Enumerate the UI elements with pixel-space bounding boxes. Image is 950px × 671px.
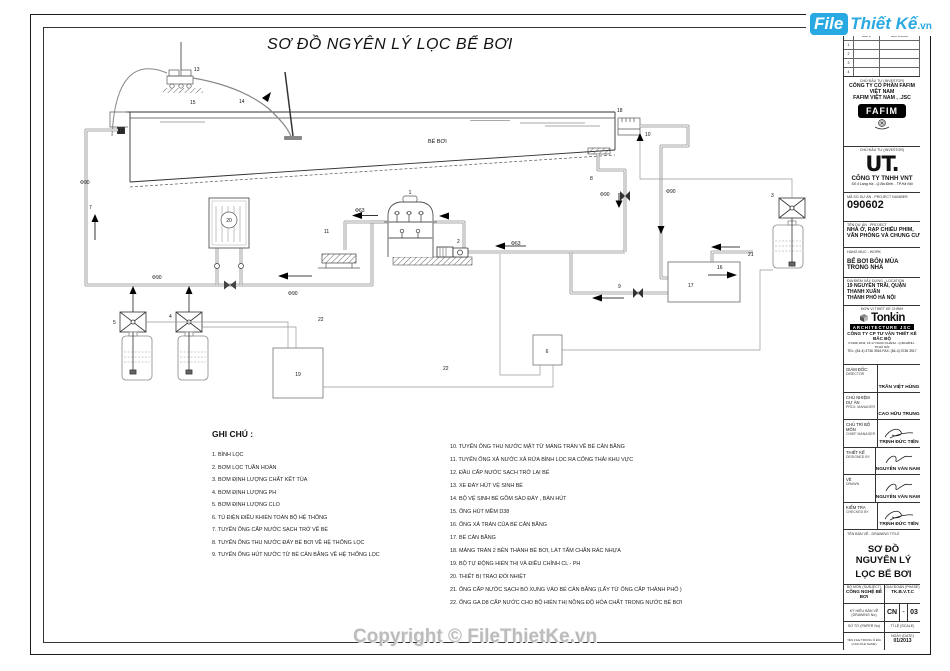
staff-row-checked-by: KIỂM TRA CHECKED BY TRỊNH ĐỨC TIẾN xyxy=(844,503,920,531)
legend-item: 22. ỐNG GA D8 CẤP NƯỚC CHO BỘ HIỂN THỊ N… xyxy=(450,597,730,610)
investor-1-section: CHỦ ĐẦU TƯ (INVESTOR) CÔNG TY CỔ PHẦN FA… xyxy=(844,76,920,147)
signature-icon xyxy=(881,454,915,467)
legend-item: 14. BỘ VỆ SINH BỂ GỒM SÀO ĐẨY , BÀN HÚT xyxy=(450,493,730,506)
staff-label-vn: CHỦ NHIỆM DỰ ÁN xyxy=(846,395,876,405)
rev-row-num: 2 xyxy=(844,50,854,59)
location-line1: 19 NGUYỄN TRÃI, QUẬN THANH XUÂN xyxy=(847,283,920,295)
design-firm-name: CÔNG TY CP TƯ VẤN THIẾT KẾ BẮC BỘ xyxy=(844,331,920,341)
revision-table: DATE NỘI DUNG 1 2 3 4 xyxy=(844,32,920,76)
fafim-emblem-icon xyxy=(871,118,893,130)
rev-row-num: 3 xyxy=(844,59,854,68)
pipe-label: Φ90 xyxy=(80,180,90,186)
water-ripples xyxy=(160,121,600,127)
tonkin-logo-sub: ARCHITECTURE JSC xyxy=(850,324,914,330)
staff-table: GIÁM ĐỐC: DIRECTOR TRẦN VIỆT HÙNG CHỦ NH… xyxy=(844,365,920,530)
legend-item: 12. ĐẦU CẤP NƯỚC SẠCH TRỞ LẠI BỂ xyxy=(450,467,730,480)
legend-item: 2. BƠM LỌC TUẦN HOÀN xyxy=(212,462,447,475)
signature-icon xyxy=(882,509,916,522)
callout-9: 9 xyxy=(618,284,621,290)
location-section: ĐỊA ĐIỂM XÂY DỰNG - LOCATION 19 NGUYỄN T… xyxy=(844,278,920,306)
legend-item: 20. THIẾT BỊ TRAO ĐỔI NHIỆT xyxy=(450,571,730,584)
filter-tank xyxy=(388,202,433,257)
callout-7: 7 xyxy=(89,205,92,211)
legend-item: 6. TỦ ĐIỆN ĐIỀU KHIỂN TOÀN BỘ HỆ THỐNG xyxy=(212,512,447,525)
cleaning-trolley xyxy=(167,70,193,88)
legend-item: 18. MÁNG TRÀN 2 BÊN THÀNH BỂ BƠI, LÁT TẤ… xyxy=(450,545,730,558)
project-name-line2: VĂN PHÒNG VÀ CHUNG CƯ xyxy=(847,233,920,239)
design-firm-tel: TEL: (84-4) 3736 3916 FAX: (84-4) 3736 3… xyxy=(844,349,920,353)
copyright-watermark: Copyright © FileThietKe.vn xyxy=(0,626,950,648)
investor2-address: Số 4 Láng Hạ - Q.Ba Đình - TP.Hà Nội xyxy=(844,182,920,186)
subject-cell: BỘ MÔN (SUBJECT) CÔNG NGHỆ BỂ BƠI xyxy=(844,585,885,604)
floor-drain-grate xyxy=(318,254,360,268)
valve-icon xyxy=(620,191,643,298)
cleaning-pole xyxy=(285,72,293,136)
legend-item: 11. TUYẾN ỐNG XẢ NƯỚC XẢ RỬA BÌNH LỌC RA… xyxy=(450,454,730,467)
project-number: 090602 xyxy=(847,199,884,211)
dosing-and-control xyxy=(120,139,805,398)
investor-2-section: CHỦ ĐẦU TƯ (INVESTOR) UT. CÔNG TY TNHH V… xyxy=(844,147,920,193)
callout-4: 4 xyxy=(169,314,172,320)
callout-8: 8 xyxy=(590,176,593,182)
drawno-left-cell: CN xyxy=(885,604,900,622)
legend-right-column: 10. TUYẾN ỐNG THU NƯỚC MẶT TỪ MÁNG TRÀN … xyxy=(450,441,730,610)
phase-cell: GIAI ĐOẠN (PHASE) TK.B.V.T.C xyxy=(885,585,920,604)
valve-icon xyxy=(224,281,236,290)
fafim-logo: FAFIM xyxy=(858,104,906,118)
staff-label-en: CHECKED BY xyxy=(846,510,876,514)
pipe-label: Φ90 xyxy=(666,189,676,195)
staff-label-en: DRAWN xyxy=(846,482,874,486)
pipe-label: Φ90 xyxy=(288,291,298,297)
legend-item: 7. TUYẾN ỐNG CẤP NƯỚC SẠCH TRỞ VỀ BỂ xyxy=(212,524,447,537)
legend-item: 8. TUYẾN ỐNG THU NƯỚC ĐÁY BỂ BƠI VỀ HỆ T… xyxy=(212,537,447,550)
staff-label-en: DIRECTOR xyxy=(846,372,876,376)
drawing-title-line2: LỌC BỂ BƠI xyxy=(847,569,920,580)
subject-value: CÔNG NGHỆ BỂ BƠI xyxy=(846,589,882,599)
legend-item: 4. BƠM ĐỊNH LƯỢNG PH xyxy=(212,487,447,500)
callout-1: 1 xyxy=(409,190,412,196)
logo-brand-text: Thiết Kế xyxy=(850,14,917,33)
hose-flow-arrow xyxy=(262,92,271,102)
drawno-label-cell: KÝ HIỆU BẢN VẼ (DRAWING No) xyxy=(844,604,885,622)
pipe-label: Φ90 xyxy=(152,275,162,281)
rev-row-num: 1 xyxy=(844,41,854,50)
staff-label-en: PROJ. MANAGER xyxy=(846,405,876,409)
staff-row-proj-manager: CHỦ NHIỆM DỰ ÁN PROJ. MANAGER CAO HỮU TR… xyxy=(844,393,920,421)
legend-item: 10. TUYẾN ỐNG THU NƯỚC MẶT TỪ MÁNG TRÀN … xyxy=(450,441,730,454)
callout-2: 2 xyxy=(457,239,460,245)
tonkin-cube-icon xyxy=(859,313,869,323)
staff-label-vn: CHỦ TRÌ BỘ MÔN xyxy=(846,422,876,432)
work-label: HẠNG MỤC - WORK xyxy=(847,250,920,254)
overflow-gutter xyxy=(618,118,640,135)
legend-item: 5. BƠM ĐỊNH LƯỢNG CLO xyxy=(212,499,447,512)
pipe-label: Φ90 xyxy=(600,192,610,198)
suction-hose xyxy=(193,78,292,140)
project-name-section: TÊN DỰ ÁN - PROJECT NHÀ Ở, RẠP CHIẾU PHI… xyxy=(844,222,920,248)
injection-lines xyxy=(133,292,189,312)
pool-filtration-schematic: BỂ BƠI xyxy=(40,28,835,432)
legend-item: 1. BÌNH LỌC xyxy=(212,449,447,462)
circulation-pump xyxy=(437,247,468,257)
filter-station xyxy=(318,196,472,268)
signature-icon xyxy=(881,482,915,495)
legend-item: 13. XE ĐẨY HÚT VỆ SINH BỂ xyxy=(450,480,730,493)
investor1-name: CÔNG TY CỔ PHẦN FAFIM VIỆT NAM xyxy=(844,83,920,95)
legend-item: 15. ỐNG HÚT MỀM D38 xyxy=(450,506,730,519)
staff-name: NGUYỄN VĂN NAM xyxy=(876,467,920,472)
drawing-title-section: TÊN BẢN VẼ - DRAWING TITLE SƠ ĐỒ NGUYÊN … xyxy=(844,530,920,585)
drawno-mid-cell: - xyxy=(900,604,908,622)
callout-10: 10 xyxy=(645,132,651,138)
tonkin-logo: Tonkin xyxy=(871,312,905,324)
callout-22: 22 xyxy=(443,366,449,372)
legend-heading: GHI CHÚ : xyxy=(212,429,253,439)
legend-item: 9. TUYẾN ỐNG HÚT NƯỚC TỪ BỂ CÂN BẰNG VỀ … xyxy=(212,549,447,562)
trolley-pad-hatch xyxy=(163,88,203,93)
pipe-label: Φ63 xyxy=(355,208,365,214)
callout-11: 11 xyxy=(324,229,329,235)
logo-file-badge: File xyxy=(810,13,848,35)
staff-row-drawn: VẼ DRAWN NGUYỄN VĂN NAM xyxy=(844,475,920,503)
design-firm-label: ĐƠN VỊ THIẾT KẾ CHÍNH xyxy=(844,307,920,311)
swimming-pool: BỂ BƠI xyxy=(110,112,640,187)
staff-name: TRẦN VIỆT HÙNG xyxy=(879,385,920,390)
pool-cleaning-set xyxy=(112,42,302,140)
drawno-right-cell: 03 xyxy=(908,604,920,622)
drawing-sheet: SƠ ĐỒ NGYÊN LÝ LỌC BỂ BƠI xyxy=(0,0,950,671)
title-block: DATE NỘI DUNG 1 2 3 4 CHỦ ĐẦU TƯ (INVEST… xyxy=(843,27,920,650)
callout-21: 21 xyxy=(748,252,754,258)
work-name: BỂ BƠI BỐN MÙA TRONG NHÀ xyxy=(847,259,920,271)
pool-label: BỂ BƠI xyxy=(428,138,447,145)
drawing-title-line1: SƠ ĐỒ NGUYÊN LÝ xyxy=(847,544,920,566)
logo-domain-text: .vn xyxy=(917,21,931,32)
callout-18: 18 xyxy=(617,108,623,114)
dosing-pump-clo xyxy=(120,312,146,332)
legend-item: 21. ỐNG CẤP NƯỚC SẠCH BỔ XUNG VÀO BỂ CÂN… xyxy=(450,584,730,597)
legend-item: 17. BỂ CÂN BẰNG xyxy=(450,532,730,545)
callout-16: 16 xyxy=(717,265,723,271)
staff-row-director: GIÁM ĐỐC: DIRECTOR TRẦN VIỆT HÙNG xyxy=(844,365,920,393)
pipe-size-labels: Φ90 Φ90 Φ90 Φ90 Φ90 Φ63 Φ63 xyxy=(80,180,676,297)
callout-19: 19 xyxy=(295,372,301,378)
legend-left-column: 1. BÌNH LỌC 2. BƠM LỌC TUẦN HOÀN 3. BƠM … xyxy=(212,449,447,562)
legend-item: 16. ỐNG XẢ TRÀN CỦA BỂ CÂN BẰNG xyxy=(450,519,730,532)
suction-head xyxy=(284,136,302,140)
work-section: HẠNG MỤC - WORK BỂ BƠI BỐN MÙA TRONG NHÀ xyxy=(844,248,920,278)
staff-name: TRỊNH ĐỨC TIẾN xyxy=(879,440,918,445)
drawing-title-label: TÊN BẢN VẼ - DRAWING TITLE xyxy=(847,532,920,536)
vnt-logo: UT. xyxy=(865,152,898,176)
callout-13: 13 xyxy=(194,67,200,73)
equipment-pad xyxy=(393,257,472,265)
callout-20: 20 xyxy=(226,218,232,224)
drawno-label: KÝ HIỆU BẢN VẼ (DRAWING No) xyxy=(844,609,884,617)
signature-icon xyxy=(882,427,916,440)
project-number-section: MÃ SỐ DỰ ÁN - PROJECT NUMBER 090602 xyxy=(844,193,920,222)
investor1-name2: FAFIM VIỆT NAM , .JSC xyxy=(844,95,920,101)
callout-14: 14 xyxy=(239,99,245,105)
staff-name: TRỊNH ĐỨC TIẾN xyxy=(879,522,918,527)
callout-6: 6 xyxy=(546,349,549,355)
callout-3: 3 xyxy=(771,193,774,199)
design-firm-address: P.1208, ĐN2, 15-17 NGỌC KHÁNH - Q.BA ĐÌN… xyxy=(844,341,920,349)
legend-item: 3. BƠM ĐỊNH LƯỢNG CHẤT KẾT TỦA xyxy=(212,474,447,487)
callout-15: 15 xyxy=(190,100,196,106)
callout-22: 22 xyxy=(318,317,324,323)
phase-value: TK.B.V.T.C xyxy=(891,589,914,594)
pipe-label: Φ63 xyxy=(511,241,521,247)
callout-12: 12 xyxy=(118,129,124,135)
balance-tank xyxy=(668,262,740,302)
staff-name: NGUYỄN VĂN NAM xyxy=(876,495,920,500)
dosing-pump-flocculant xyxy=(779,198,805,218)
staff-row-chief-manager: CHỦ TRÌ BỘ MÔN CHIEF MANAGER TRỊNH ĐỨC T… xyxy=(844,420,920,448)
staff-label-en: DESIGNED BY xyxy=(846,455,874,459)
staff-name: CAO HỮU TRUNG xyxy=(878,412,919,417)
design-firm-section: ĐƠN VỊ THIẾT KẾ CHÍNH Tonkin ARCHITECTUR… xyxy=(844,306,920,365)
callout-17: 17 xyxy=(688,283,694,289)
location-line2: THÀNH PHỐ HÀ NỘI xyxy=(847,295,920,301)
staff-row-designed-by: THIẾT KẾ DESIGNED BY NGUYỄN VĂN NAM xyxy=(844,448,920,476)
rev-row-num: 4 xyxy=(844,68,854,76)
callout-5: 5 xyxy=(113,320,116,326)
filethietke-logo[interactable]: FileThiết Kế.vn xyxy=(806,12,936,36)
heat-exchanger xyxy=(209,198,249,290)
legend-item: 19. BỘ TỰ ĐỘNG HIỂN THỊ VÀ ĐIỀU CHỈNH CL… xyxy=(450,558,730,571)
staff-label-en: CHIEF MANAGER xyxy=(846,432,876,436)
